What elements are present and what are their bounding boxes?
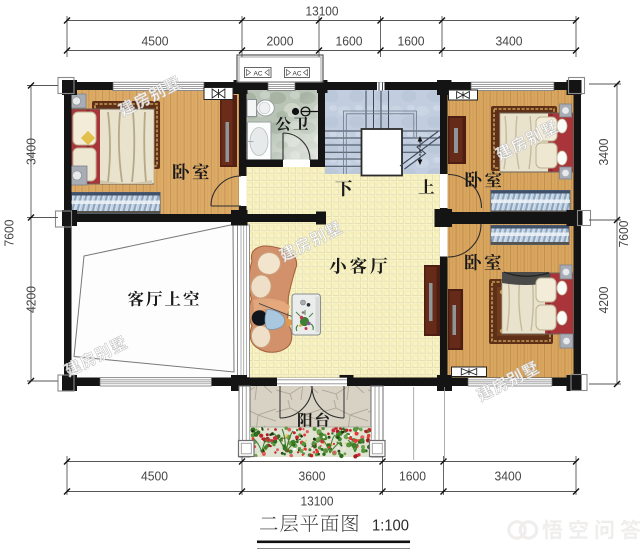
svg-text:4200: 4200 <box>25 286 39 313</box>
svg-text:1600: 1600 <box>398 34 425 48</box>
svg-text:AC: AC <box>292 71 301 78</box>
svg-text:4500: 4500 <box>142 34 169 48</box>
svg-text:3400: 3400 <box>496 34 523 48</box>
svg-text:3600: 3600 <box>299 469 326 483</box>
svg-text:2000: 2000 <box>267 34 294 48</box>
svg-text:4500: 4500 <box>141 469 168 483</box>
svg-text:13100: 13100 <box>301 495 334 509</box>
svg-text:13100: 13100 <box>306 5 339 19</box>
svg-text:1600: 1600 <box>399 469 426 483</box>
svg-text:7600: 7600 <box>617 220 631 247</box>
svg-text:3400: 3400 <box>25 138 39 165</box>
svg-text:1:100: 1:100 <box>372 518 409 535</box>
svg-text:3400: 3400 <box>597 138 611 165</box>
svg-text:4200: 4200 <box>597 286 611 313</box>
svg-text:1600: 1600 <box>336 34 363 48</box>
svg-text:AC: AC <box>253 71 262 78</box>
svg-text:7600: 7600 <box>3 219 17 246</box>
svg-text:3400: 3400 <box>495 469 522 483</box>
